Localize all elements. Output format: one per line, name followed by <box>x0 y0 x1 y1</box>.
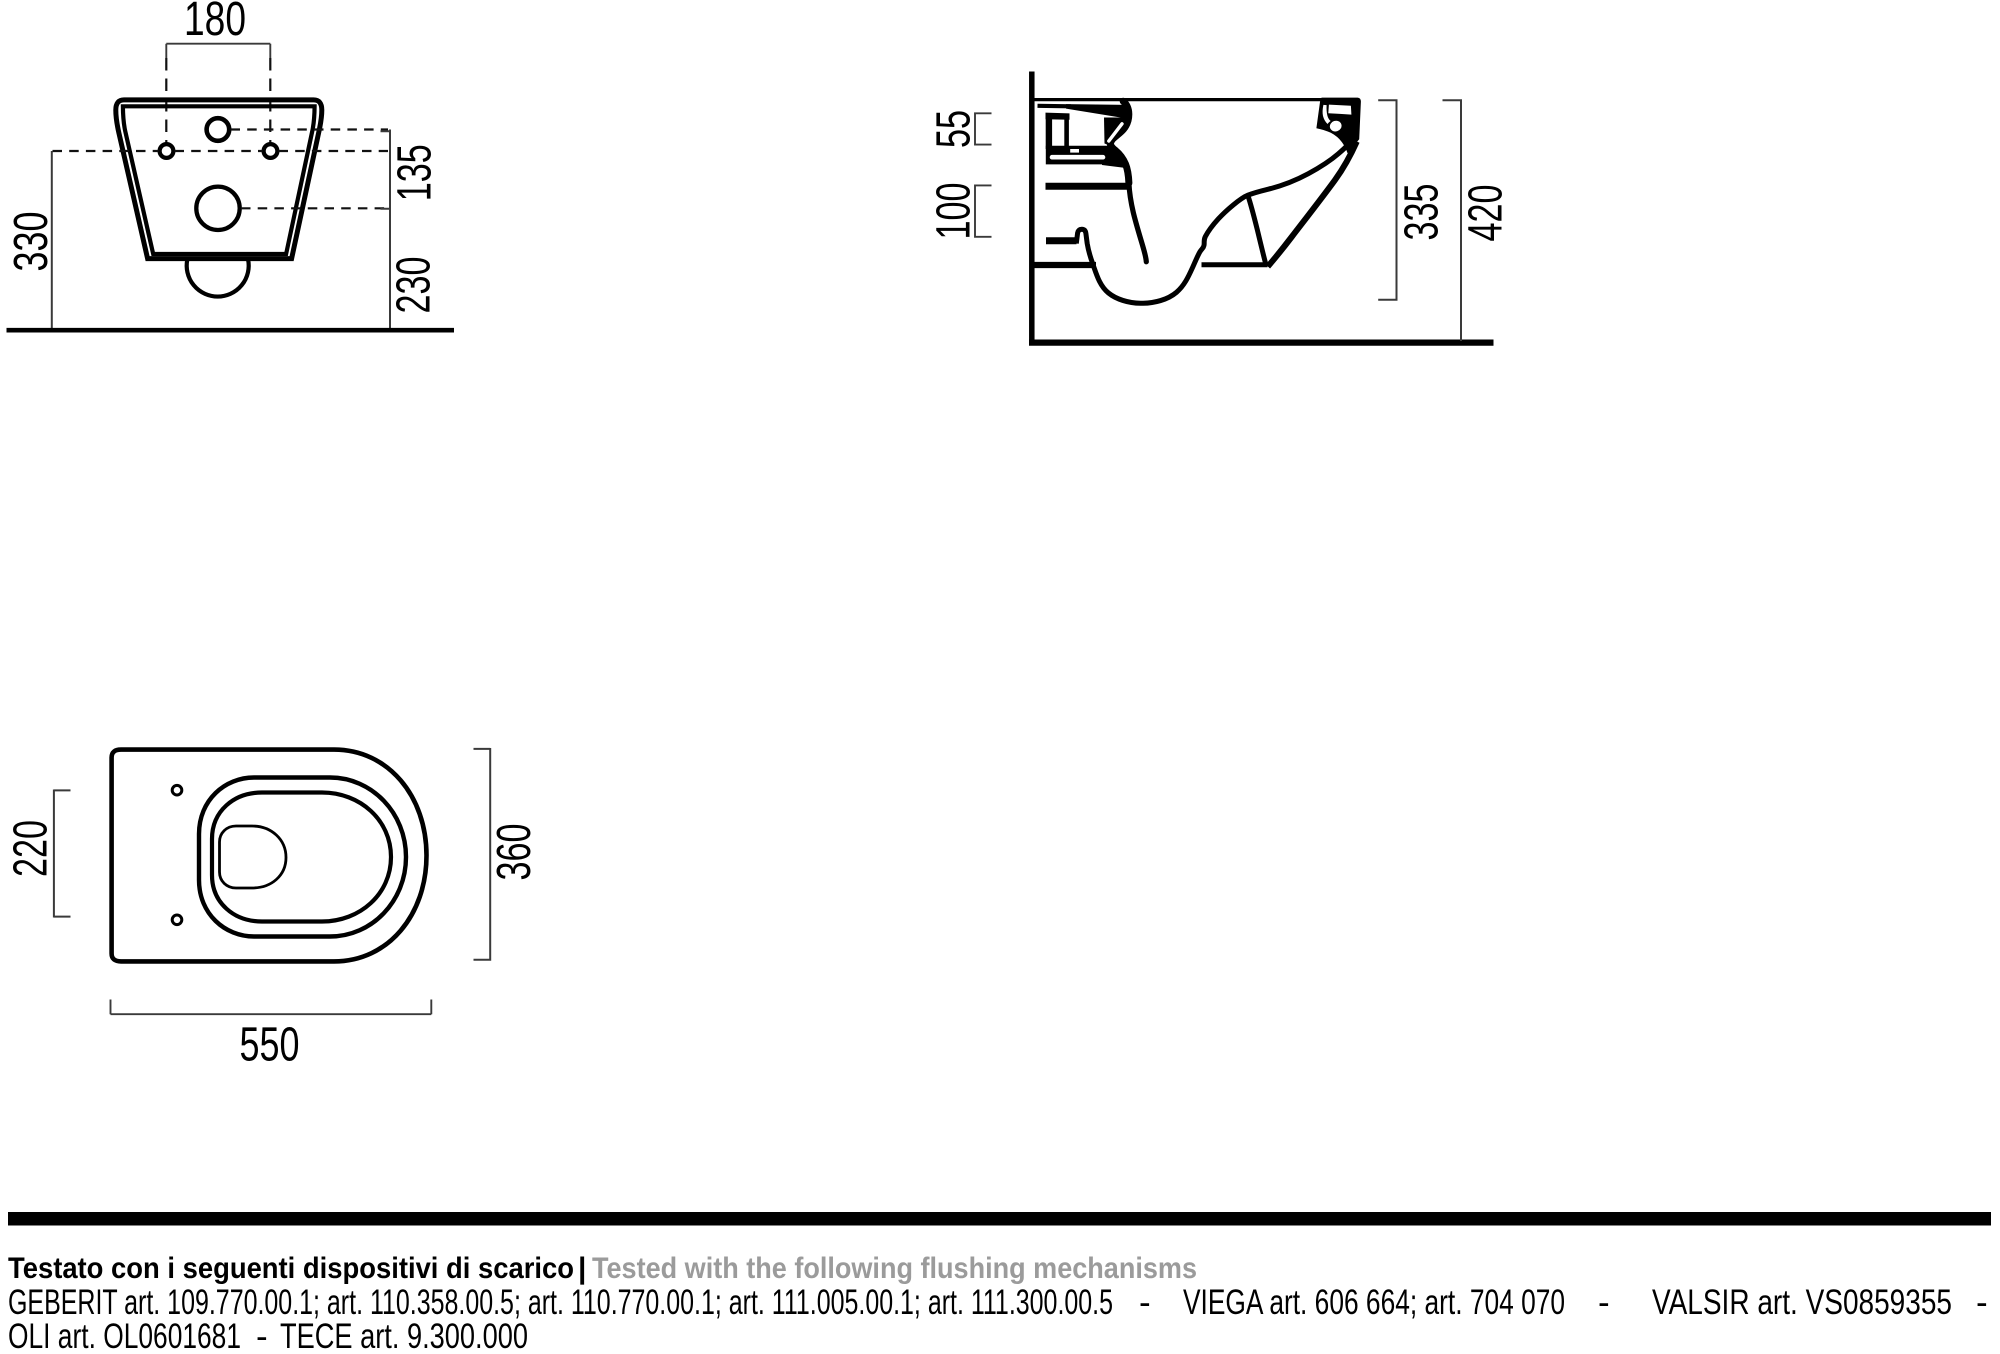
svg-text:335: 335 <box>1395 184 1448 241</box>
svg-text:135: 135 <box>388 144 441 201</box>
svg-text:OLI art. OL0601681: OLI art. OL0601681 <box>8 1317 241 1354</box>
svg-text:360: 360 <box>488 824 541 881</box>
svg-text:220: 220 <box>4 820 57 877</box>
svg-text:VIEGA art. 606 664; art. 704 0: VIEGA art. 606 664; art. 704 070 <box>1183 1283 1565 1322</box>
svg-text:330: 330 <box>5 212 58 272</box>
svg-text:Tested with the following flus: Tested with the following flushing mecha… <box>592 1252 1197 1285</box>
svg-text:-: - <box>1139 1283 1151 1322</box>
svg-text:180: 180 <box>184 0 246 46</box>
svg-text:100: 100 <box>927 183 980 240</box>
svg-text:550: 550 <box>240 1018 300 1071</box>
svg-text:-: - <box>1976 1283 1988 1322</box>
svg-text:VALSIR art. VS0859355: VALSIR art. VS0859355 <box>1652 1283 1952 1322</box>
svg-text:55: 55 <box>927 110 980 148</box>
svg-text:420: 420 <box>1460 185 1513 242</box>
svg-text:-: - <box>1598 1283 1610 1322</box>
svg-text:-: - <box>256 1317 268 1354</box>
svg-text:|: | <box>578 1252 586 1285</box>
svg-text:230: 230 <box>387 257 440 314</box>
svg-text:Testato con i seguenti disposi: Testato con i seguenti dispositivi di sc… <box>8 1252 574 1285</box>
svg-text:TECE art. 9.300.000: TECE art. 9.300.000 <box>280 1317 528 1354</box>
